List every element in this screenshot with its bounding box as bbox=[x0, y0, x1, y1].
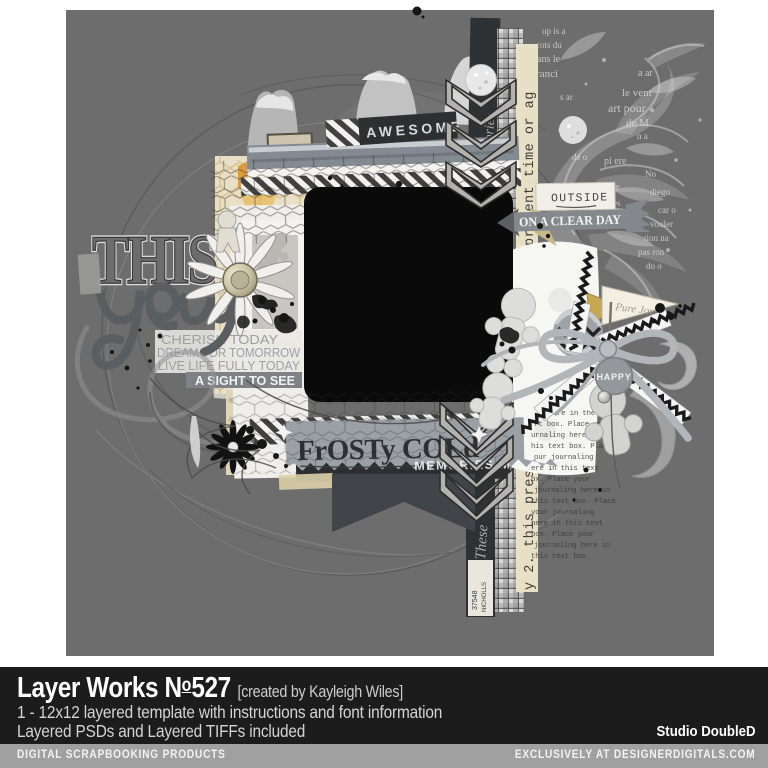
svg-text:These: These bbox=[473, 524, 491, 560]
svg-text:OUTSIDE: OUTSIDE bbox=[551, 191, 609, 205]
svg-text:37548: 37548 bbox=[472, 590, 479, 610]
svg-text:pas ron: pas ron bbox=[638, 247, 665, 257]
svg-text:A SIGHT TO SEE: A SIGHT TO SEE bbox=[195, 374, 295, 388]
svg-text:No: No bbox=[645, 169, 656, 179]
svg-text:a ar: a ar bbox=[638, 68, 653, 79]
svg-text:car o: car o bbox=[658, 205, 676, 215]
svg-text:ox. Place your: ox. Place your bbox=[531, 476, 590, 484]
svg-text:journaling here in: journaling here in bbox=[534, 542, 610, 550]
svg-text:here in this text: here in this text bbox=[531, 520, 603, 528]
svg-text:do o: do o bbox=[646, 261, 662, 271]
svg-text:this text box.: this text box. bbox=[531, 553, 590, 561]
svg-text:LIVE LIFE FULLY TODAY: LIVE LIFE FULLY TODAY bbox=[158, 359, 301, 373]
svg-text:HAPPY: HAPPY bbox=[596, 372, 631, 382]
svg-text:up is a: up is a bbox=[542, 26, 566, 36]
svg-text:s ar: s ar bbox=[560, 92, 573, 102]
svg-text:n a: n a bbox=[637, 131, 648, 141]
svg-text:art pour: art pour bbox=[608, 101, 646, 115]
svg-text:cots du: cots du bbox=[536, 40, 562, 50]
svg-text:box. Place your: box. Place your bbox=[531, 531, 595, 539]
svg-text:ere in this text: ere in this text bbox=[531, 465, 599, 473]
svg-text:our journaling: our journaling bbox=[534, 454, 593, 462]
svg-text:NICHOLLS: NICHOLLS bbox=[482, 582, 488, 612]
svg-text:ON A CLEAR DAY: ON A CLEAR DAY bbox=[519, 212, 621, 229]
svg-text:his text box. Place: his text box. Place bbox=[531, 443, 611, 451]
svg-text:le vent: le vent bbox=[622, 87, 652, 99]
svg-text:your journaling: your journaling bbox=[531, 509, 595, 517]
